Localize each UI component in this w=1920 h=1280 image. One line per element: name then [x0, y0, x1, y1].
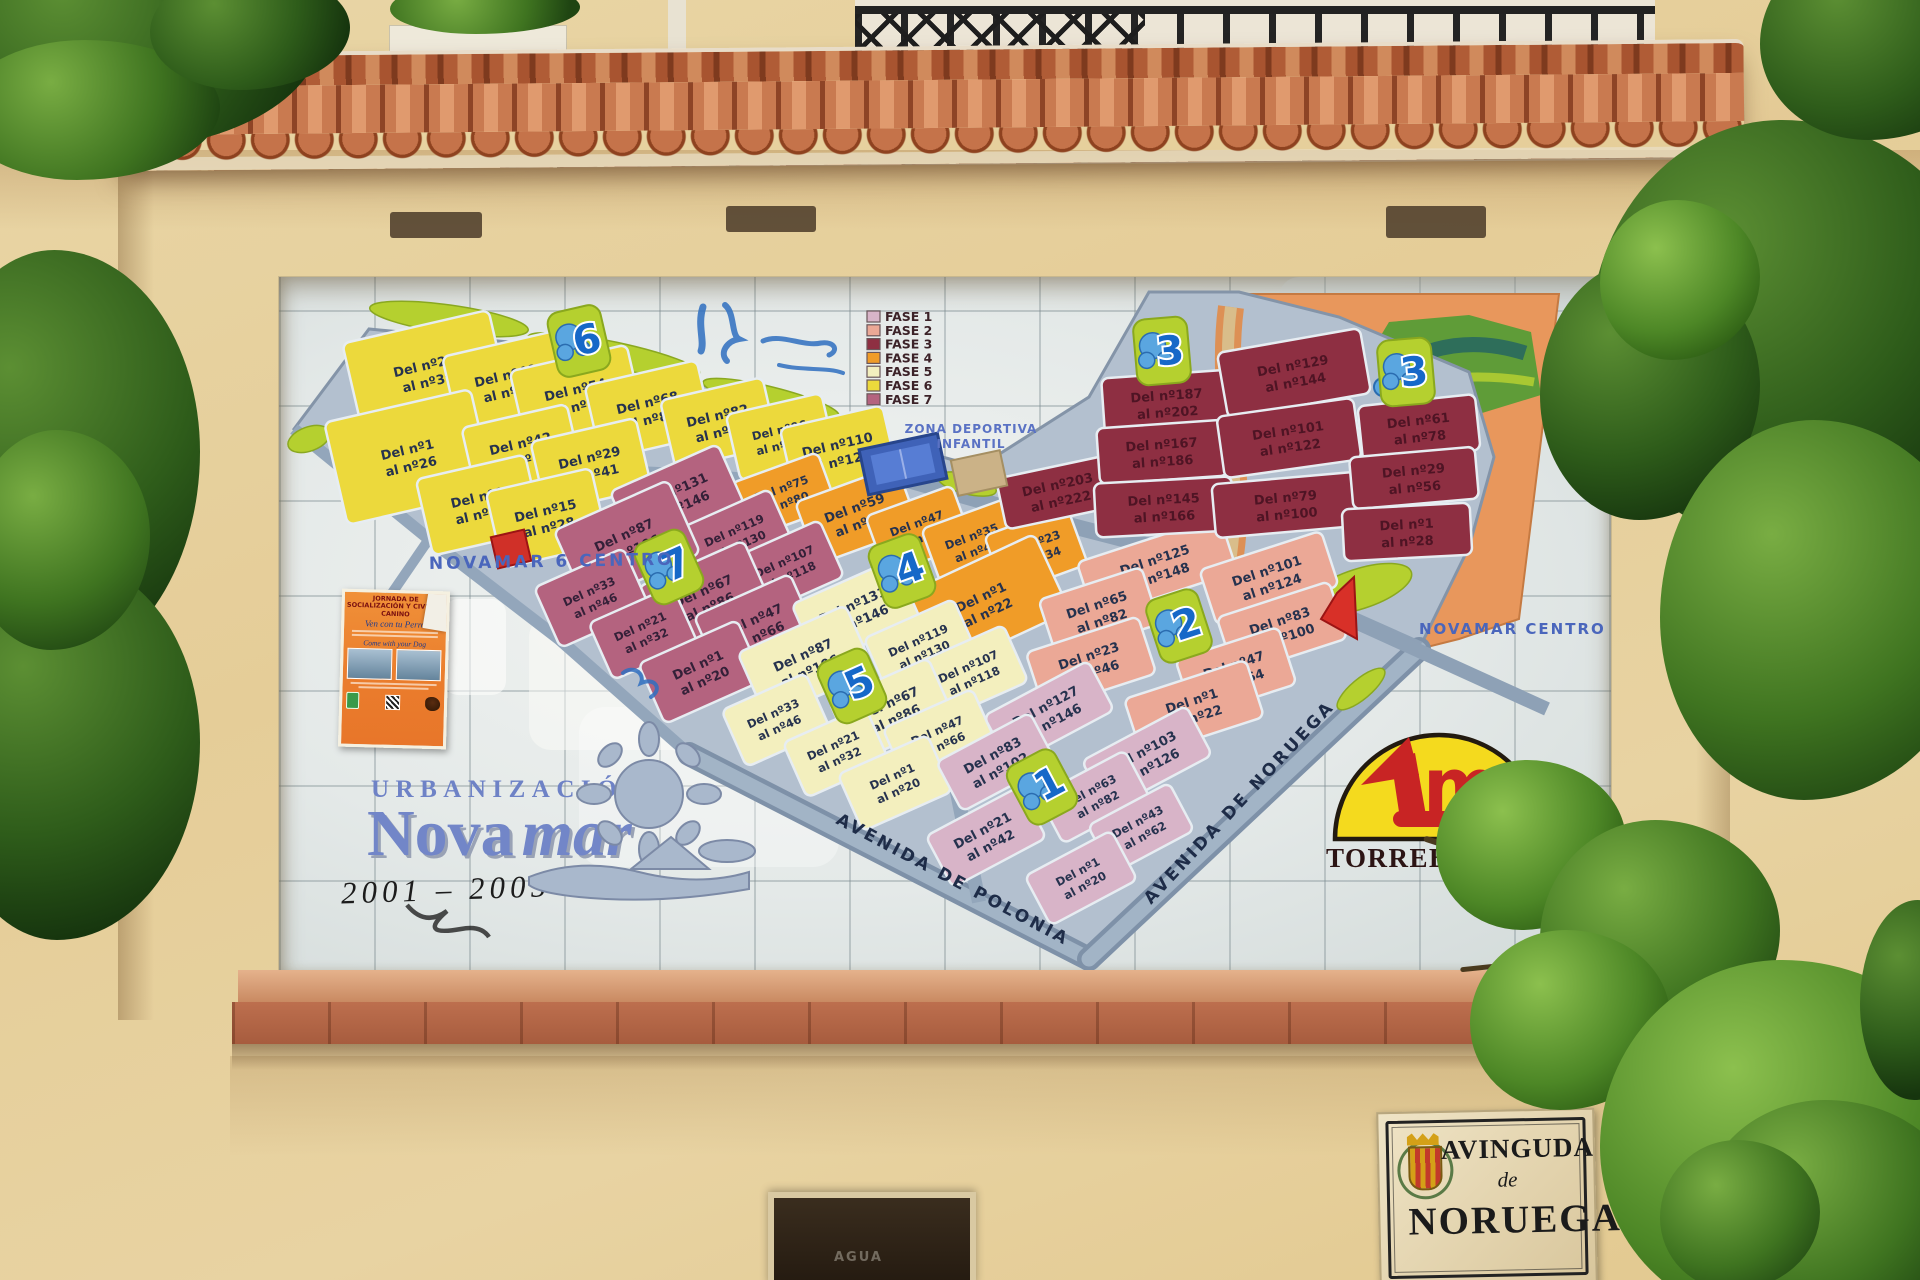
svg-text:Del nº1: Del nº1 [1379, 517, 1434, 535]
sign-line1: AVINGUDA [1441, 1132, 1595, 1166]
sign-line3: NORUEGA [1408, 1195, 1622, 1244]
map-plot: Del nº29al nº56 [1349, 447, 1479, 510]
legend-swatch [867, 366, 880, 377]
utility-door-recess: AGUA [768, 1192, 976, 1280]
wall-vent [1386, 206, 1486, 238]
map-plot: Del nº79al nº100 [1211, 472, 1360, 538]
label-zona-deportiva-2: INFANTIL [937, 437, 1006, 451]
legend-swatch [867, 339, 880, 350]
legend-label: FASE 5 [885, 364, 932, 379]
photo-scene: Del nº27al nº39Del nº40al nº53Del nº54al… [0, 0, 1920, 1280]
poster-photo [347, 648, 393, 680]
poster-qr-code [384, 695, 399, 710]
poster-footer [342, 690, 444, 712]
phase-legend: FASE 1FASE 2FASE 3FASE 4FASE 5FASE 6FASE… [867, 309, 933, 407]
svg-text:3: 3 [1398, 348, 1430, 396]
mural-title-block: URBANIZACIÓN Novamar Novamar 2001 – 2005 [340, 722, 755, 937]
legend-label: FASE 6 [885, 378, 933, 393]
legend-label: FASE 4 [885, 350, 933, 365]
phase-marker: 3 [1132, 316, 1192, 386]
svg-text:3: 3 [1154, 327, 1186, 375]
poster-dog-silhouette [425, 697, 440, 711]
crest-shield [1408, 1146, 1443, 1191]
legend-label: FASE 3 [885, 337, 932, 352]
poster-green-badge [346, 692, 359, 709]
label-novamar-centro: NOVAMAR CENTRO [1419, 620, 1606, 638]
dog-event-poster: JORNADA DE SOCIALIZACIÓN Y CIVISMO CANIN… [338, 589, 450, 750]
title-novamar: Novamar [367, 797, 633, 870]
svg-text:al nº28: al nº28 [1381, 534, 1434, 552]
street-sign-avinguda-noruega: AVINGUDA de NORUEGA [1376, 1108, 1598, 1280]
legend-swatch [867, 311, 880, 322]
legend-label: FASE 7 [885, 392, 932, 407]
crest-crown [1407, 1133, 1439, 1146]
poster-photos [343, 647, 446, 683]
legend-label: FASE 1 [885, 309, 932, 324]
label-zona-deportiva-1: ZONA DEPORTIVA [905, 422, 1038, 436]
sill-shadow [232, 1044, 1634, 1070]
legend-swatch [867, 380, 880, 391]
wall-vent [390, 212, 482, 238]
phase-marker: 3 [1376, 337, 1436, 407]
wall-vent [726, 206, 816, 232]
sign-line2: de [1497, 1167, 1517, 1192]
agua-graffiti-door: AGUA [834, 1250, 883, 1265]
legend-label: FASE 2 [885, 323, 932, 338]
legend-swatch [867, 394, 880, 405]
sill-top [238, 970, 1630, 1005]
tile-mural-panel: Del nº27al nº39Del nº40al nº53Del nº54al… [278, 276, 1612, 978]
graffiti-black-scribble [407, 905, 489, 937]
legend-swatch [867, 352, 880, 363]
novamar-map: Del nº27al nº39Del nº40al nº53Del nº54al… [279, 277, 1611, 977]
title-years: 2001 – 2005 [340, 868, 551, 910]
legend-swatch [867, 325, 880, 336]
poster-photo [396, 649, 442, 681]
sill-brick-front [232, 1002, 1634, 1044]
poster-textline [358, 686, 428, 690]
map-plot: Del nº1al nº28 [1342, 503, 1473, 562]
terracotta-roof [116, 39, 1745, 171]
map-plot: Del nº167al nº186 [1096, 420, 1228, 485]
svg-text:al nº166: al nº166 [1133, 508, 1195, 526]
